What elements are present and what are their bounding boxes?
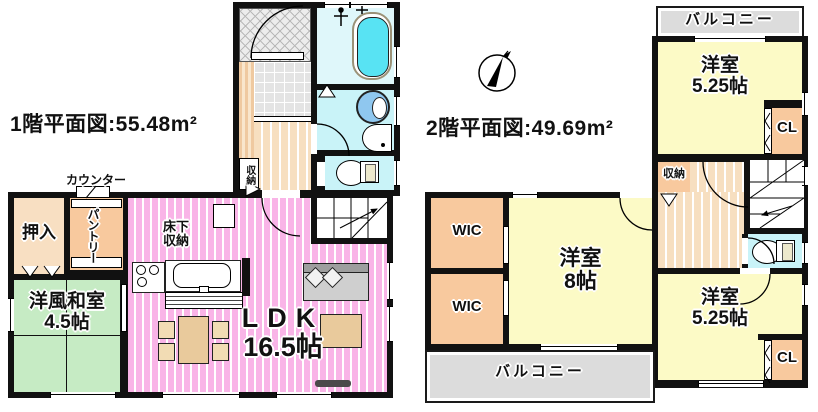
- label-washitsu-line1: 洋風和室: [29, 291, 105, 312]
- window: [512, 192, 538, 198]
- f1-counter-passthrough: [76, 186, 110, 198]
- floor-plan-canvas: 1階平面図:55.48m² 2階平面図:49.69m² カウンター 押入 パント…: [0, 0, 818, 412]
- window: [387, 262, 393, 300]
- f1-wall-stairs-bottom: [311, 238, 387, 244]
- label-oshiire: 押入: [14, 224, 64, 242]
- label-bedroom525-top-line2: 5.25帖: [692, 76, 748, 97]
- label-wic-bottom: WIC: [431, 299, 503, 315]
- window: [387, 306, 393, 342]
- window: [802, 166, 808, 186]
- label-counter: カウンター: [56, 174, 136, 187]
- f1-washroom-door-gap: [311, 124, 317, 154]
- label-bedroom8: 洋室 8帖: [509, 248, 652, 293]
- f1-hallway: [254, 122, 311, 190]
- f1-entrance-door-leaf: [251, 52, 304, 60]
- label-storage-f2: 収納: [656, 169, 692, 181]
- bathtub-icon: [352, 12, 392, 80]
- label-bedroom8-line1: 洋室: [560, 247, 602, 270]
- window: [694, 36, 766, 42]
- label-pantry: パントリー: [86, 206, 99, 264]
- label-washitsu: 洋風和室 4.5帖: [8, 292, 126, 333]
- tatami-line-h: [14, 335, 120, 336]
- window: [350, 2, 388, 8]
- window: [394, 46, 400, 78]
- window: [394, 160, 400, 186]
- f1-toilet-door-gap: [317, 162, 325, 186]
- label-washitsu-line2: 4.5帖: [44, 312, 89, 333]
- window: [50, 392, 116, 398]
- window: [802, 284, 808, 306]
- label-bedroom525-bottom-line1: 洋室: [701, 287, 739, 308]
- washstand-sink-icon: [362, 124, 392, 152]
- f2-hallway-upper: [690, 162, 744, 192]
- chair-icon: [158, 343, 175, 361]
- label-cl-bottom: CL: [770, 350, 804, 366]
- f1-ldk-door-gap: [262, 190, 300, 198]
- floor2-title: 2階平面図:49.69m²: [426, 118, 613, 141]
- f2-hallway: [658, 192, 744, 270]
- label-ldk: LDK 16.5帖: [203, 304, 363, 362]
- chair-icon: [158, 321, 175, 339]
- toilet-lid-f1: [365, 164, 376, 182]
- label-ldk-line2: 16.5帖: [243, 332, 323, 362]
- label-bedroom525-bottom-line2: 5.25帖: [692, 308, 748, 329]
- window: [802, 242, 808, 264]
- floor1-title: 1階平面図:55.48m²: [10, 114, 197, 137]
- toilet-tank-f2: [776, 240, 795, 262]
- f1-shoe-cabinet-strip: [239, 62, 254, 158]
- f1-cabinet: [213, 204, 235, 228]
- label-underfloor-storage: 床下 収納: [148, 220, 204, 248]
- window: [276, 392, 332, 398]
- label-balcony-top: バルコニー: [656, 12, 804, 28]
- stove-icon: [132, 262, 165, 293]
- window: [324, 2, 350, 8]
- f2-toilet-door-gap: [742, 238, 748, 264]
- f1-stairs: [317, 198, 387, 238]
- label-underfloor-line2: 収納: [163, 233, 189, 248]
- window: [162, 392, 240, 398]
- f1-wall-kitchen-end: [242, 258, 250, 296]
- f1-wall-stairs-left: [311, 198, 317, 242]
- label-bedroom525-top-line1: 洋室: [701, 55, 739, 76]
- label-underfloor-line1: 床下: [163, 219, 189, 234]
- window: [540, 344, 618, 350]
- window: [802, 92, 808, 116]
- label-wic-top: WIC: [431, 223, 503, 239]
- label-bedroom525-bottom: 洋室 5.25帖: [658, 288, 782, 329]
- washing-machine-icon: [356, 90, 390, 124]
- window: [698, 381, 764, 387]
- toilet-tank-f1: [360, 161, 379, 183]
- f2-bed8-door-gap: [620, 192, 652, 198]
- label-ldk-line1: LDK: [242, 303, 325, 333]
- f1-wall-bath-wash: [317, 84, 394, 90]
- f2-stairs: [750, 160, 804, 228]
- f1-wall-corridor-sanitary: [311, 8, 317, 190]
- tv-icon: [315, 380, 351, 387]
- bathtub-water: [357, 17, 389, 77]
- compass-icon: [479, 51, 515, 91]
- window: [394, 96, 400, 126]
- label-cl-top: CL: [770, 120, 804, 136]
- f1-genkan-tile: [254, 62, 311, 120]
- tatami-line-v2: [66, 335, 67, 392]
- label-balcony-bottom: バルコニー: [425, 364, 655, 380]
- toilet-lid-f2: [782, 243, 793, 261]
- label-bedroom8-line2: 8帖: [564, 270, 597, 293]
- washing-machine-door: [372, 97, 387, 119]
- kitchen-sink-icon: [173, 263, 231, 288]
- label-bedroom525-top: 洋室 5.25帖: [662, 56, 778, 97]
- label-storage-f1: 収納: [243, 161, 254, 189]
- washstand-drain: [381, 143, 385, 147]
